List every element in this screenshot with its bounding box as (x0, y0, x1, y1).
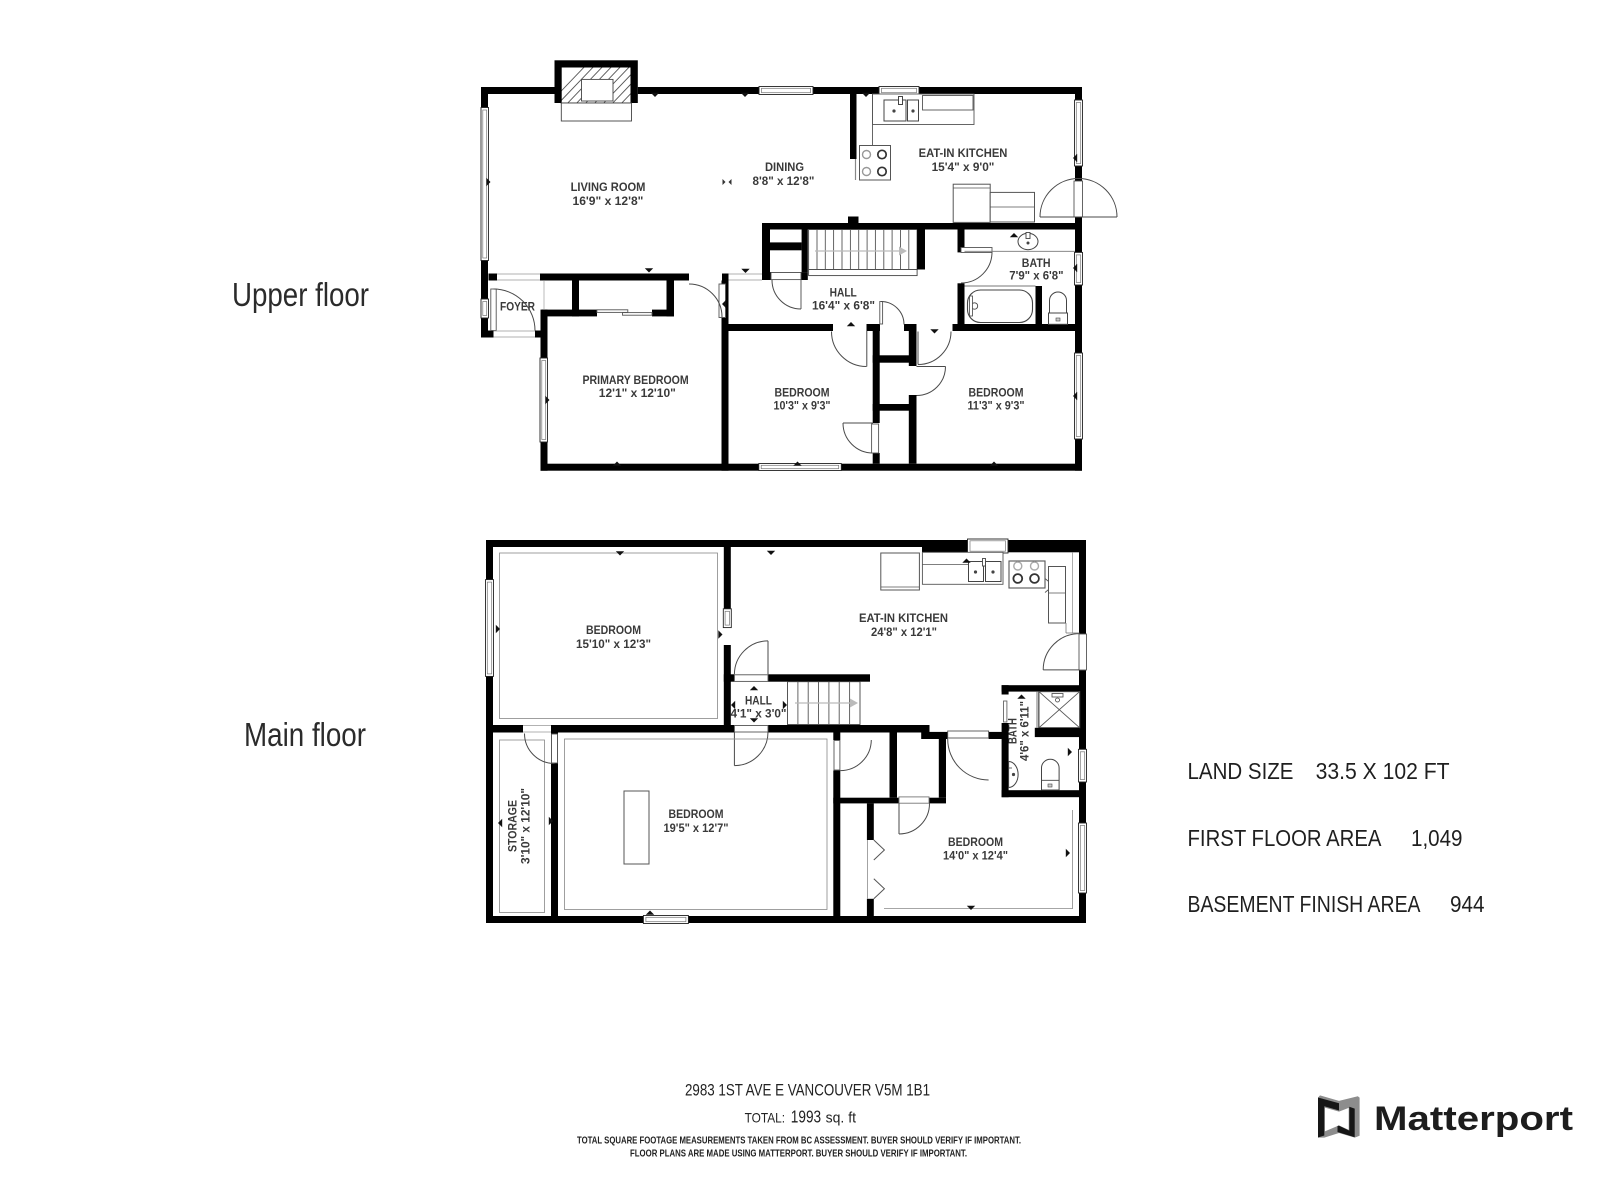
svg-text:Matterport: Matterport (1374, 1100, 1573, 1138)
svg-text:15'4" x 9'0": 15'4" x 9'0" (932, 161, 995, 174)
svg-text:16'4" x 6'8": 16'4" x 6'8" (812, 300, 875, 313)
svg-text:19'5" x 12'7": 19'5" x 12'7" (664, 822, 729, 835)
svg-text:24'8" x 12'1": 24'8" x 12'1" (871, 626, 937, 639)
svg-text:33.5 X 102 FT: 33.5 X 102 FT (1316, 758, 1450, 784)
svg-text:944: 944 (1450, 891, 1485, 917)
svg-text:TOTAL:: TOTAL: (745, 1110, 786, 1126)
svg-text:12'1" x 12'10": 12'1" x 12'10" (599, 387, 676, 400)
svg-text:STORAGE: STORAGE (507, 800, 520, 852)
svg-text:BEDROOM: BEDROOM (948, 836, 1003, 849)
svg-text:7'9" x 6'8": 7'9" x 6'8" (1009, 270, 1063, 283)
svg-text:BASEMENT FINISH AREA: BASEMENT FINISH AREA (1188, 891, 1422, 917)
svg-text:FLOOR PLANS ARE MADE USING MAT: FLOOR PLANS ARE MADE USING MATTERPORT. B… (630, 1149, 967, 1160)
svg-text:EAT-IN KITCHEN: EAT-IN KITCHEN (919, 147, 1008, 160)
svg-text:DINING: DINING (765, 161, 804, 174)
svg-text:Upper floor: Upper floor (232, 276, 369, 313)
svg-text:LAND SIZE: LAND SIZE (1188, 758, 1294, 784)
svg-text:FIRST FLOOR AREA: FIRST FLOOR AREA (1188, 825, 1383, 851)
svg-text:BEDROOM: BEDROOM (669, 808, 724, 821)
svg-text:4'6" x 6'11": 4'6" x 6'11" (1019, 701, 1032, 761)
svg-text:Main floor: Main floor (244, 716, 366, 753)
svg-text:sq. ft: sq. ft (826, 1111, 856, 1127)
svg-text:HALL: HALL (830, 287, 857, 300)
svg-text:HALL: HALL (745, 695, 772, 708)
svg-text:11'3" x 9'3": 11'3" x 9'3" (968, 400, 1025, 413)
svg-text:8'8" x 12'8": 8'8" x 12'8" (753, 175, 815, 188)
svg-text:PRIMARY BEDROOM: PRIMARY BEDROOM (583, 374, 689, 387)
svg-text:14'0" x 12'4": 14'0" x 12'4" (943, 850, 1008, 863)
svg-text:TOTAL SQUARE FOOTAGE MEASUREME: TOTAL SQUARE FOOTAGE MEASUREMENTS TAKEN … (577, 1136, 1021, 1147)
svg-text:16'9" x 12'8": 16'9" x 12'8" (573, 195, 644, 208)
svg-text:LIVING ROOM: LIVING ROOM (571, 181, 646, 194)
svg-text:BEDROOM: BEDROOM (969, 387, 1024, 400)
svg-text:EAT-IN KITCHEN: EAT-IN KITCHEN (859, 612, 948, 625)
svg-text:4'1" x 3'0": 4'1" x 3'0" (731, 708, 787, 721)
svg-text:2983 1ST AVE E VANCOUVER V5M 1: 2983 1ST AVE E VANCOUVER V5M 1B1 (685, 1081, 930, 1100)
svg-text:1,049: 1,049 (1411, 825, 1463, 851)
svg-text:BEDROOM: BEDROOM (586, 624, 641, 637)
svg-text:BATH: BATH (1022, 257, 1051, 270)
svg-text:1993: 1993 (791, 1107, 821, 1127)
svg-text:3'10" x 12'10": 3'10" x 12'10" (520, 788, 533, 864)
svg-text:BEDROOM: BEDROOM (775, 387, 830, 400)
svg-text:15'10" x 12'3": 15'10" x 12'3" (576, 638, 651, 651)
svg-text:10'3" x 9'3": 10'3" x 9'3" (774, 400, 831, 413)
